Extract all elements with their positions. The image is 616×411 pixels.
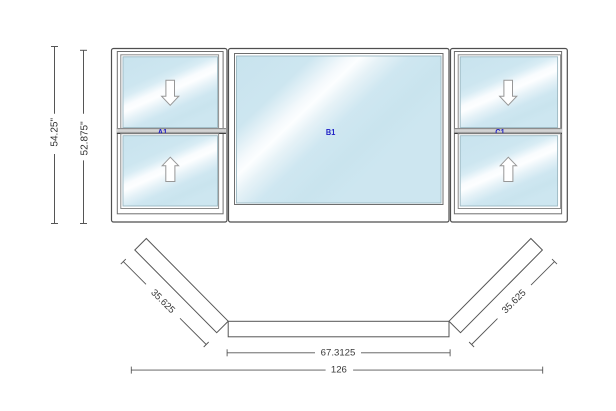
svg-text:B1: B1 <box>326 128 336 137</box>
svg-text:67.3125: 67.3125 <box>321 347 356 358</box>
svg-text:54.25": 54.25" <box>49 118 60 147</box>
svg-text:52.875": 52.875" <box>79 121 90 156</box>
svg-text:126: 126 <box>331 364 347 375</box>
